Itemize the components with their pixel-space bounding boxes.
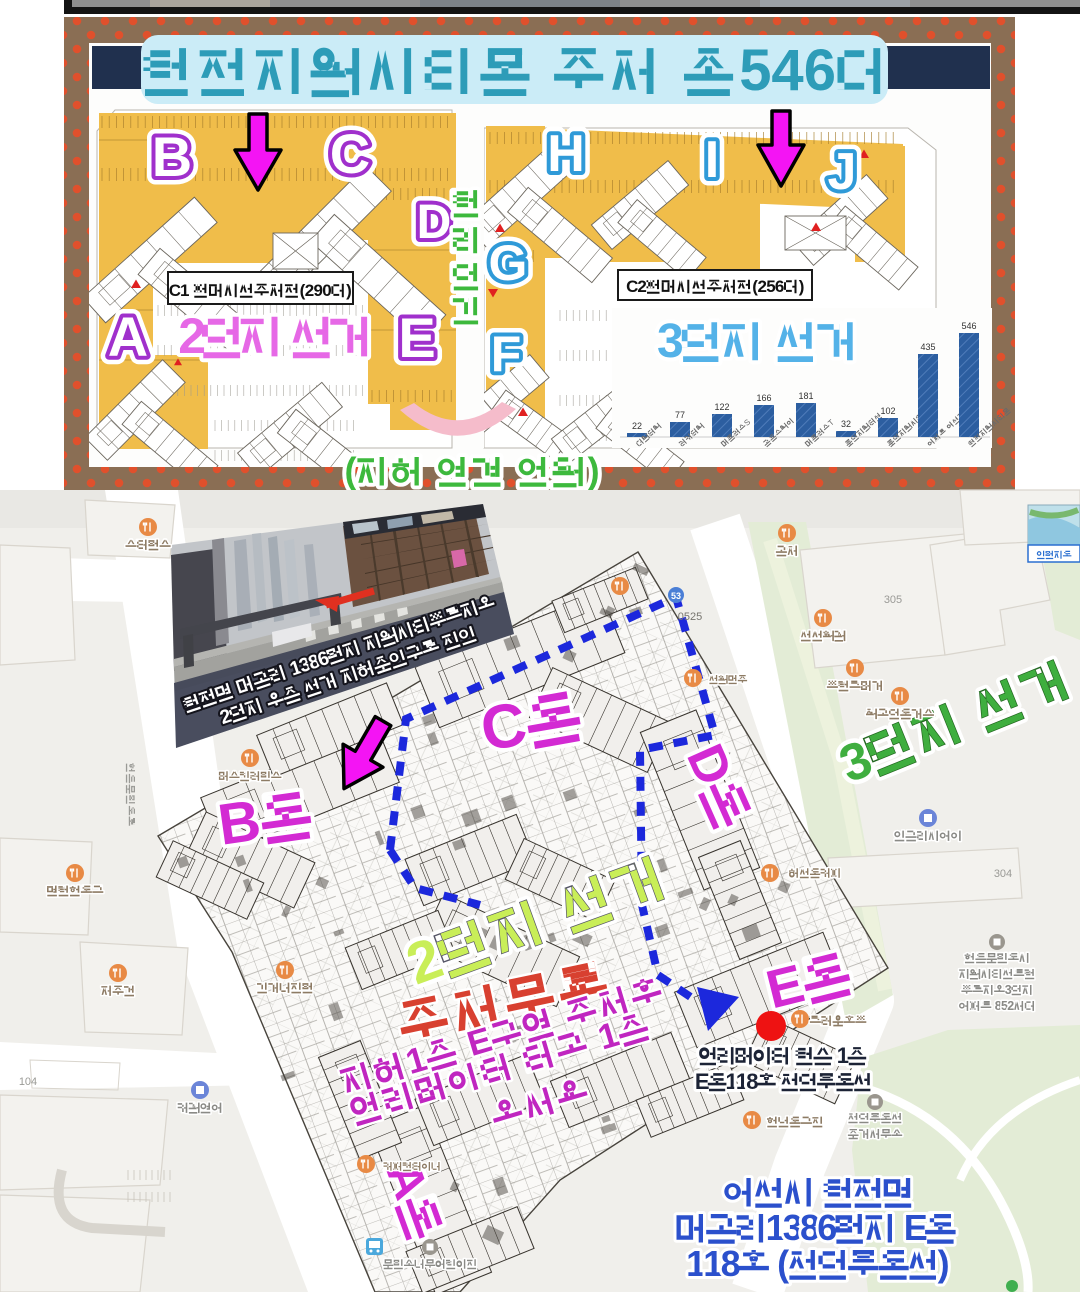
svg-text:): ): [938, 1243, 950, 1284]
svg-text:(: (: [345, 450, 357, 491]
svg-text:6: 6: [804, 38, 836, 103]
svg-text:166: 166: [756, 393, 771, 403]
svg-text:F: F: [491, 326, 522, 382]
svg-text:3: 3: [1005, 983, 1012, 997]
svg-text:0: 0: [322, 281, 331, 300]
svg-text:): ): [588, 450, 600, 491]
svg-text:D: D: [417, 196, 452, 249]
svg-text:J: J: [828, 143, 857, 201]
svg-text:E: E: [398, 306, 435, 369]
svg-text:8: 8: [746, 1069, 758, 1094]
svg-text:1: 1: [837, 1043, 849, 1068]
svg-text:6: 6: [817, 1207, 837, 1248]
svg-text:0525: 0525: [678, 611, 702, 623]
svg-text:8: 8: [721, 1243, 741, 1284]
svg-text:102: 102: [880, 406, 895, 416]
svg-text:E: E: [695, 1069, 710, 1094]
svg-text:2: 2: [637, 277, 646, 296]
svg-text:1: 1: [180, 281, 189, 300]
svg-text:B: B: [152, 125, 192, 188]
svg-text:): ): [799, 277, 805, 296]
svg-text:E: E: [904, 1207, 928, 1248]
svg-text:435: 435: [920, 342, 935, 352]
svg-text:I: I: [705, 131, 719, 189]
svg-text:H: H: [547, 125, 585, 183]
svg-text:6: 6: [775, 277, 784, 296]
svg-text:104: 104: [19, 1076, 37, 1088]
svg-text:546: 546: [961, 321, 976, 331]
svg-text:A: A: [108, 305, 148, 368]
svg-text:G: G: [489, 235, 528, 291]
svg-text:(: (: [777, 1243, 789, 1284]
svg-text:C: C: [330, 122, 370, 185]
svg-text:): ): [346, 281, 352, 300]
svg-text:304: 304: [994, 868, 1012, 880]
svg-text:122: 122: [714, 402, 729, 412]
svg-text:4: 4: [771, 38, 803, 103]
svg-text:3: 3: [657, 315, 684, 368]
svg-text:53: 53: [671, 591, 681, 601]
svg-text:181: 181: [798, 391, 813, 401]
svg-text:2: 2: [1007, 999, 1014, 1013]
svg-text:32: 32: [841, 419, 851, 429]
svg-text:B: B: [214, 788, 265, 858]
svg-text:305: 305: [884, 594, 902, 606]
svg-text:77: 77: [675, 410, 685, 420]
svg-text:22: 22: [632, 421, 642, 431]
svg-text:5: 5: [739, 38, 771, 103]
